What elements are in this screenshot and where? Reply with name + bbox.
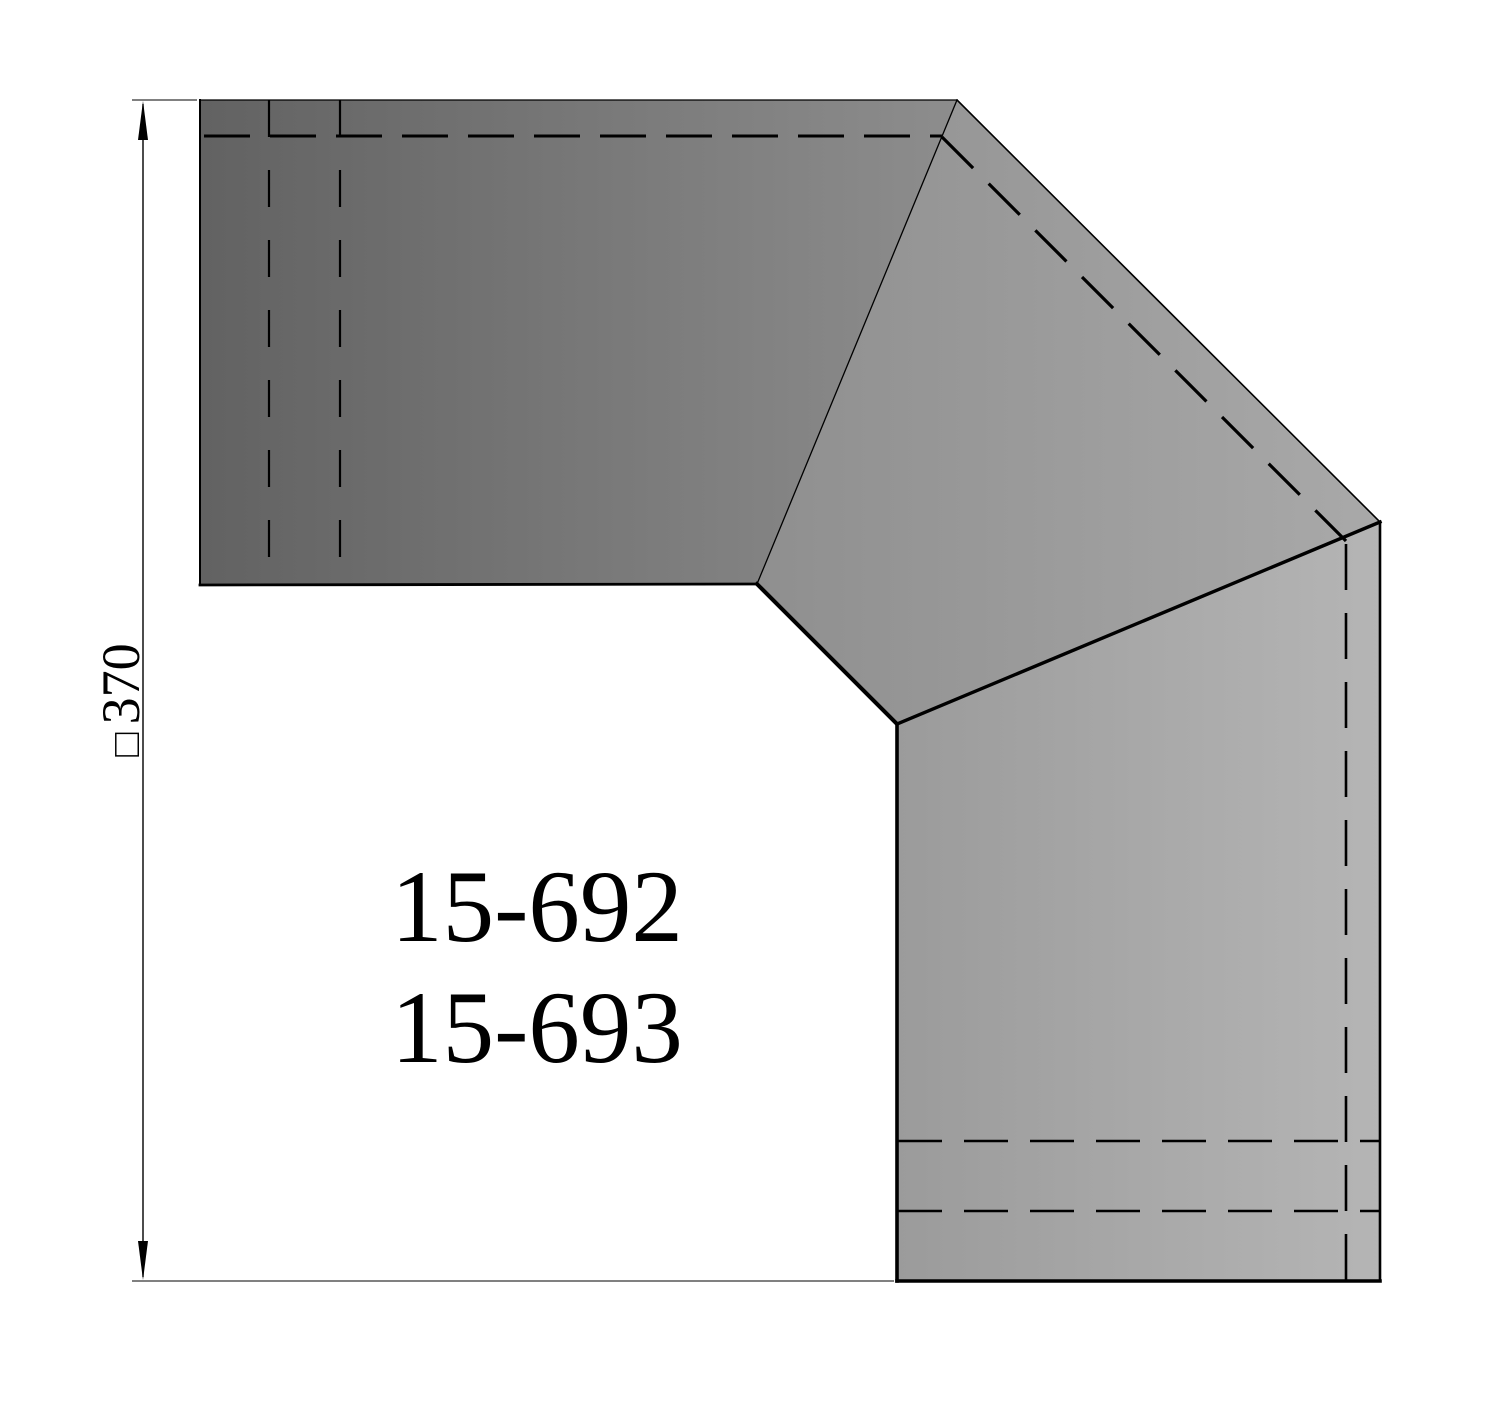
part-number-2: 15-693 [391,971,683,1085]
drawing-canvas: □370 15-692 15-693 [0,0,1500,1414]
inlet-bottom-edge [200,584,757,585]
square-section-symbol: □ [103,732,148,756]
duct-elbow-diagram: □370 15-692 15-693 [0,0,1500,1414]
dimension-value: 370 [91,643,151,724]
part-number-1: 15-692 [391,850,683,964]
